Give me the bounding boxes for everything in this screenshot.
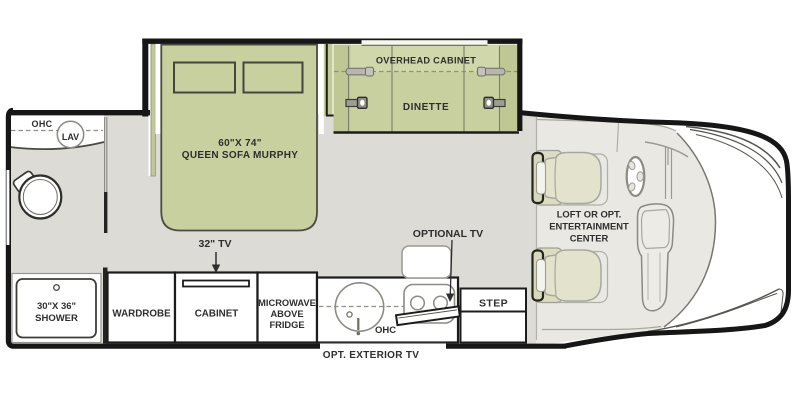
svg-text:FRIDGE: FRIDGE <box>269 320 304 330</box>
svg-text:OPT. EXTERIOR TV: OPT. EXTERIOR TV <box>323 350 420 361</box>
svg-text:QUEEN SOFA MURPHY: QUEEN SOFA MURPHY <box>182 150 298 161</box>
svg-text:WARDROBE: WARDROBE <box>112 309 171 320</box>
svg-text:DINETTE: DINETTE <box>403 102 449 113</box>
svg-text:30"X 36": 30"X 36" <box>37 301 76 312</box>
svg-text:OHC: OHC <box>375 325 396 336</box>
svg-text:OHC: OHC <box>32 119 53 129</box>
svg-text:LOFT OR OPT.: LOFT OR OPT. <box>557 209 622 220</box>
svg-text:ABOVE: ABOVE <box>270 309 303 319</box>
svg-text:SHOWER: SHOWER <box>35 313 78 324</box>
svg-text:STEP: STEP <box>479 298 508 310</box>
svg-text:MICROWAVE: MICROWAVE <box>258 298 316 308</box>
svg-text:OPTIONAL TV: OPTIONAL TV <box>413 228 483 240</box>
svg-text:CABINET: CABINET <box>195 309 239 320</box>
svg-text:60"X 74": 60"X 74" <box>218 138 262 149</box>
svg-text:ENTERTAINMENT: ENTERTAINMENT <box>549 221 629 232</box>
svg-text:32" TV: 32" TV <box>199 238 232 250</box>
svg-text:OVERHEAD CABINET: OVERHEAD CABINET <box>376 56 476 66</box>
svg-text:LAV: LAV <box>62 132 79 142</box>
svg-text:CENTER: CENTER <box>570 233 609 244</box>
